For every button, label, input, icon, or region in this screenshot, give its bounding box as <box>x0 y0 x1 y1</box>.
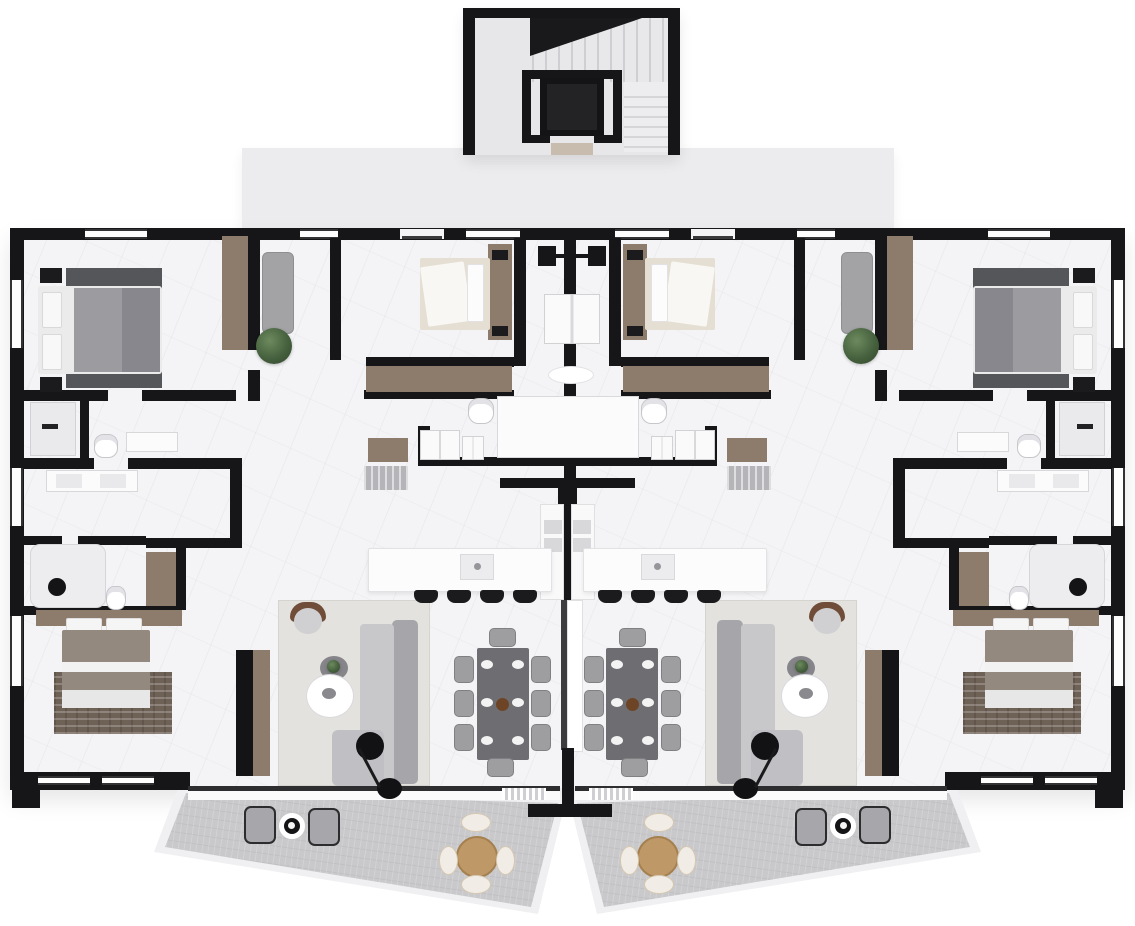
wall-hall-upper-right <box>875 238 887 350</box>
dining-chair-top-left <box>489 628 516 647</box>
balcony-side-table-dot-right <box>840 822 847 829</box>
wall-hall-upper-left <box>248 238 260 350</box>
wall-entry-bottom-left <box>500 478 564 488</box>
wall-bath1-top-a-right <box>1027 390 1111 401</box>
side-window-2-left <box>10 468 23 526</box>
island-faucet-left <box>474 563 481 570</box>
bed3-duvet-left <box>420 261 472 327</box>
bath2-basin-1-left <box>56 474 82 488</box>
bed3-deco-1-right <box>627 250 643 260</box>
lounge-chair-2-left <box>308 808 340 846</box>
kitchen-fridge-left <box>420 430 460 460</box>
bar-stool-3-right <box>631 590 655 603</box>
core-wall-top <box>463 8 680 18</box>
dining-chair-r3-right <box>584 724 604 751</box>
wing-bottom-window-1-right <box>1045 776 1097 785</box>
plate-5-right <box>611 698 623 707</box>
wall-corridor-right-right <box>949 548 959 610</box>
balcony-chair-right-left <box>496 846 515 875</box>
master-bed-fold-right <box>975 288 1013 372</box>
master-nightstand-1-left <box>40 268 62 283</box>
wing-bottom-window-2-left <box>102 776 154 785</box>
dining-chair-l1-right <box>661 656 681 683</box>
bath2-basin-2-left <box>100 474 126 488</box>
tv-panel-right <box>882 650 899 776</box>
bar-stool-4-left <box>513 590 537 603</box>
powder-toilet-left <box>468 398 494 424</box>
plate-1-right <box>642 660 654 669</box>
bar-stool-3-left <box>480 590 504 603</box>
bath1-shower-right <box>1059 402 1105 456</box>
unit-entry-door-leaf-left <box>402 236 442 239</box>
wall-corridor-mid-left <box>146 538 242 548</box>
corridor-wardrobe-left <box>146 552 176 606</box>
master-pillow-2-right <box>1073 334 1093 370</box>
lounge-chair-1-left <box>244 806 276 844</box>
elevator-wall-right <box>613 70 622 143</box>
bed3-pillow-right <box>651 264 668 322</box>
tv-shelf-right <box>865 650 882 776</box>
wing-bottom-window-2-right <box>981 776 1033 785</box>
wall-bed3-left-left <box>330 238 341 360</box>
corner-pillar-right <box>1095 786 1123 808</box>
bed3-duvet-right <box>663 261 715 327</box>
top-window-1-right <box>988 229 1050 239</box>
bed3-deco-2-right <box>627 326 643 336</box>
elevator-wall-bottom-right <box>594 135 622 143</box>
wall-bath1-top-b-left <box>142 390 236 401</box>
bath1-toilet-left <box>94 434 118 458</box>
side-window-1-left <box>10 280 23 348</box>
balcony-chair-bottom-right <box>644 875 674 894</box>
balcony-chair-right-right <box>620 846 639 875</box>
bath2-tub-left <box>30 544 106 608</box>
balcony-entry-mat-right <box>589 788 633 800</box>
wing-bottom-window-1-left <box>38 776 90 785</box>
top-wall <box>10 228 1125 240</box>
wall-corridor-right-left <box>176 548 186 610</box>
bar-stool-1-right <box>697 590 721 603</box>
bath1-vanity-left <box>126 432 178 452</box>
corridor-wardrobe-right <box>959 552 989 606</box>
bath1-towel-rail-right <box>1077 424 1093 429</box>
hall-closet-row-left <box>366 366 512 392</box>
wall-vestibule-side-left <box>514 238 526 366</box>
master-bed-fold-left <box>122 288 160 372</box>
bath2-toilet-right <box>1009 586 1029 610</box>
top-window-3-right <box>615 229 669 239</box>
vestibule-laundry <box>544 294 600 344</box>
vestibule-oval-mat <box>548 366 594 384</box>
top-window-3-left <box>466 229 520 239</box>
plate-3-left <box>481 736 493 745</box>
master-nightstand-2-left <box>40 377 62 392</box>
hall-closet-b-right <box>727 438 767 462</box>
bath1-vanity-right <box>957 432 1009 452</box>
wall-bath1-divider-right <box>1046 396 1055 460</box>
lounge-chair-2-right <box>795 808 827 846</box>
hall-plant-right <box>843 328 879 364</box>
dining-chair-l3-left <box>454 724 474 751</box>
side-window-3-left <box>10 616 23 686</box>
bed2-stripe-left <box>62 662 150 672</box>
kitchen-fridge-right <box>675 430 715 460</box>
wall-corridor-left-left <box>230 458 242 544</box>
kitchen-dishwasher-right <box>651 436 673 460</box>
powder-toilet-right <box>641 398 667 424</box>
side-table-plant-right <box>795 660 808 673</box>
floor-lamp-base-left <box>377 778 402 799</box>
balcony-round-table-left <box>456 836 498 878</box>
lounge-chair-1-right <box>859 806 891 844</box>
corner-pillar-left <box>12 786 40 808</box>
coffee-table-deco-right <box>799 688 813 699</box>
wall-bath1-top-b-right <box>899 390 993 401</box>
wall-bath1-bottom-b-right <box>899 458 1007 469</box>
dining-chair-bottom-right <box>621 758 648 777</box>
master-pillow-2-left <box>42 334 62 370</box>
master-pillow-1-right <box>1073 292 1093 328</box>
core-wall-left <box>463 8 475 155</box>
bar-stool-1-left <box>414 590 438 603</box>
core-entry-mat <box>551 143 593 155</box>
dining-chair-l3-right <box>661 724 681 751</box>
unit-entry-door-leaf-right <box>693 236 733 239</box>
dining-chair-r2-right <box>584 690 604 717</box>
dining-chair-l1-left <box>454 656 474 683</box>
kitchen-island-right <box>583 548 767 592</box>
dining-chair-r3-left <box>531 724 551 751</box>
bath1-towel-rail-left <box>42 424 58 429</box>
sofa-back-right <box>717 620 743 784</box>
staircase-lower-treads <box>624 96 668 152</box>
elevator-wall-left <box>522 70 531 143</box>
bed3-deco-1-left <box>492 250 508 260</box>
wall-bed3-left-right <box>794 238 805 360</box>
wall-hall-stub-left <box>248 370 260 401</box>
bath2-basin-1-right <box>1053 474 1079 488</box>
balcony-chair-top-right <box>644 813 674 832</box>
bath2-toilet-left <box>106 586 126 610</box>
sofa-back-left <box>392 620 418 784</box>
bed2-foot-left <box>62 690 150 708</box>
dining-chair-bottom-left <box>487 758 514 777</box>
hall-closet-b-left <box>368 438 408 462</box>
plate-3-right <box>642 736 654 745</box>
bath1-toilet-right <box>1017 434 1041 458</box>
plate-5-left <box>512 698 524 707</box>
bed2-foot-right <box>985 690 1073 708</box>
center-wall-thin <box>561 600 567 750</box>
master-nightstand-2-right <box>1073 377 1095 392</box>
plate-2-left <box>481 698 493 707</box>
armchair-seat-right <box>813 608 841 634</box>
bath2-tub-right <box>1029 544 1105 608</box>
tv-panel-left <box>236 650 253 776</box>
wall-bath1-bottom-a-right <box>1041 458 1111 469</box>
wall-hall-stub-right <box>875 370 887 401</box>
hall-closet-row-right <box>623 366 769 392</box>
dining-chair-r2-left <box>531 690 551 717</box>
bed2-stripe-right <box>985 662 1073 672</box>
top-window-1-left <box>85 229 147 239</box>
bar-stool-2-right <box>664 590 688 603</box>
dining-chair-l2-right <box>661 690 681 717</box>
side-window-1-right <box>1112 280 1125 348</box>
wall-entry-bottom-right <box>571 478 635 488</box>
island-faucet-right <box>654 563 661 570</box>
dining-centerpiece-left <box>496 698 509 711</box>
vestibule-fixture-bar <box>552 254 592 258</box>
plate-6-left <box>512 736 524 745</box>
cooktop-1-right <box>573 520 591 534</box>
master-pillow-1-left <box>42 292 62 328</box>
balcony-chair-top-left <box>461 813 491 832</box>
center-wall-white <box>567 600 583 752</box>
balcony-chair-bottom-left <box>461 875 491 894</box>
plate-2-right <box>642 698 654 707</box>
master-wardrobe-right <box>887 236 913 350</box>
upper-terrace <box>242 148 894 232</box>
coffee-table-deco-left <box>322 688 336 699</box>
elevator-wall-bottom-left <box>522 135 550 143</box>
bed3-pillow-left <box>467 264 484 322</box>
tv-shelf-left <box>253 650 270 776</box>
wall-vestibule-side-right <box>609 238 621 366</box>
balcony-side-table-dot-left <box>288 822 295 829</box>
center-utility-block <box>497 396 639 458</box>
center-wall-tbar <box>528 804 612 817</box>
dining-chair-r1-right <box>584 656 604 683</box>
balcony-entry-mat-left <box>502 788 546 800</box>
balcony-round-table-right <box>637 836 679 878</box>
floor-lamp-shade-right <box>751 732 779 760</box>
kitchen-dishwasher-left <box>462 436 484 460</box>
bar-stool-2-left <box>447 590 471 603</box>
dining-chair-top-right <box>619 628 646 647</box>
plate-6-right <box>611 736 623 745</box>
hall-sofa-left <box>262 252 294 334</box>
wall-bath1-bottom-a-left <box>24 458 94 469</box>
floor-plan <box>0 0 1135 926</box>
bath2-basin-2-right <box>1009 474 1035 488</box>
bed3-deco-2-left <box>492 326 508 336</box>
bar-stool-4-right <box>598 590 622 603</box>
side-window-3-right <box>1112 616 1125 686</box>
plate-4-left <box>512 660 524 669</box>
wall-corridor-mid-right <box>893 538 989 548</box>
wall-bath1-bottom-b-left <box>128 458 236 469</box>
hall-sofa-right <box>841 252 873 334</box>
floor-lamp-shade-left <box>356 732 384 760</box>
core-wall-right <box>668 8 680 155</box>
dining-centerpiece-right <box>626 698 639 711</box>
bath1-shower-left <box>30 402 76 456</box>
radiator-unit-right <box>727 466 771 490</box>
dining-chair-r1-left <box>531 656 551 683</box>
master-wardrobe-left <box>222 236 248 350</box>
master-nightstand-1-right <box>1073 268 1095 283</box>
plate-1-left <box>481 660 493 669</box>
plate-4-right <box>611 660 623 669</box>
wall-bath1-divider-left <box>80 396 89 460</box>
wall-corridor-left-right <box>893 458 905 544</box>
wall-bath1-top-a-left <box>24 390 108 401</box>
elevator-car-inner <box>547 84 597 130</box>
side-window-2-right <box>1112 468 1125 526</box>
side-table-plant-left <box>327 660 340 673</box>
bath2-tub-faucet-left <box>48 578 66 596</box>
floor-lamp-base-right <box>733 778 758 799</box>
center-wall-stem <box>562 748 574 806</box>
bath2-tub-faucet-right <box>1069 578 1087 596</box>
dining-chair-l2-left <box>454 690 474 717</box>
armchair-seat-left <box>294 608 322 634</box>
balcony-chair-left-right <box>677 846 696 875</box>
balcony-chair-left-left <box>439 846 458 875</box>
radiator-unit-left <box>364 466 408 490</box>
cooktop-1-left <box>544 520 562 534</box>
hall-plant-left <box>256 328 292 364</box>
